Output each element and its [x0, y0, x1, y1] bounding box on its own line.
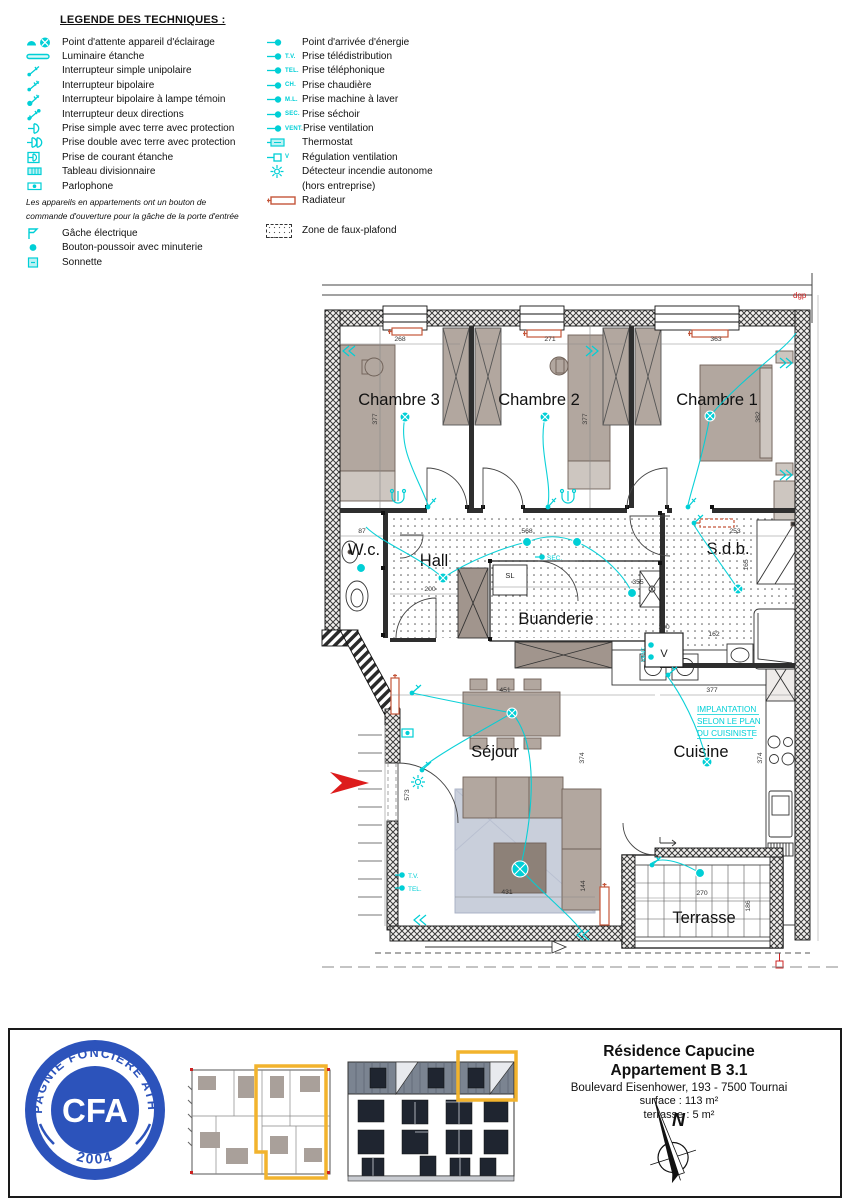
energy-point-icon — [266, 36, 302, 49]
legend-item-subline: (hors entreprise) — [266, 179, 496, 193]
legend-item: Détecteur incendie autonome — [266, 165, 496, 179]
title-block: COMPAGNIE FONCIERE ATHOISE 2004 CFA — [8, 1028, 842, 1198]
room-label-wc: W.c. — [348, 541, 380, 559]
switch-pilot-icon — [26, 93, 62, 106]
legend-item: Prise double avec terre avec protection — [26, 136, 264, 150]
svg-text:363: 363 — [710, 336, 722, 343]
false-ceiling-icon — [266, 224, 302, 238]
svg-text:SELON LE PLAN: SELON LE PLAN — [697, 717, 761, 726]
cfa-acronym: CFA — [62, 1092, 128, 1129]
svg-text:431: 431 — [501, 889, 513, 896]
socket-double-icon — [26, 136, 62, 149]
entrance-arrow — [330, 772, 369, 794]
svg-text:374: 374 — [579, 752, 586, 764]
legend-item: VRégulation ventilation — [266, 150, 496, 164]
svg-text:IMPLANTATION: IMPLANTATION — [697, 705, 756, 714]
svg-text:377: 377 — [706, 687, 718, 694]
apartment-id: Appartement B 3.1 — [528, 1061, 830, 1080]
legend-item: SEC.Prise séchoir — [266, 107, 496, 121]
svg-text:451: 451 — [499, 687, 511, 694]
svg-text:T.V.: T.V. — [408, 873, 419, 880]
socket-icon — [414, 915, 426, 925]
room-label-terrasse: Terrasse — [672, 909, 735, 927]
building-elevation — [340, 1042, 522, 1188]
legend-item: TEL.Prise téléphonique — [266, 64, 496, 78]
svg-text:DU CUISINISTE: DU CUISINISTE — [697, 729, 758, 738]
electric-strike-icon — [26, 227, 62, 240]
floor-plan: dgp — [0, 265, 848, 985]
legend-item: Interrupteur deux directions — [26, 107, 264, 121]
svg-text:270: 270 — [696, 890, 708, 897]
legend-item: Parlophone — [26, 179, 264, 193]
candelabra-icon — [561, 490, 576, 504]
room-label-sdb: S.d.b. — [706, 540, 749, 558]
label-sl: SL — [505, 571, 514, 580]
label-v: V — [660, 648, 668, 660]
svg-text:VENT.: VENT. — [641, 646, 647, 662]
smoke-detector-icon — [411, 775, 425, 789]
svg-text:186: 186 — [745, 900, 752, 912]
tv-socket-icon: T.V. — [266, 50, 302, 63]
legend-item: Interrupteur simple unipolaire — [26, 64, 264, 78]
radiator-icon — [266, 194, 302, 207]
cfa-logo: COMPAGNIE FONCIERE ATHOISE 2004 CFA — [24, 1039, 166, 1181]
room-label-chambre3: Chambre 3 — [358, 391, 440, 409]
svg-text:377: 377 — [372, 413, 379, 425]
switch-bipolar-icon — [26, 79, 62, 92]
legend-item: Prise de courant étanche — [26, 150, 264, 164]
svg-text:144: 144 — [580, 880, 587, 892]
legend-item: Point d'arrivée d'énergie — [266, 35, 496, 49]
legend-item: Interrupteur bipolaire à lampe témoin — [26, 93, 264, 107]
phone-socket-icon: TEL. — [266, 64, 302, 77]
room-label-cuisine: Cuisine — [673, 743, 728, 761]
legend-item: M.L.Prise machine à laver — [266, 93, 496, 107]
distribution-board-icon — [26, 165, 62, 178]
legend-item: Point d'attente appareil d'éclairage — [26, 35, 264, 49]
legend-item: Thermostat — [266, 136, 496, 150]
svg-text:162: 162 — [708, 631, 720, 638]
legend-item: CH.Prise chaudière — [266, 78, 496, 92]
svg-text:TEL.: TEL. — [408, 886, 422, 893]
legend-note: Les appareils en appartements ont un bou… — [26, 196, 264, 223]
legend-item: Prise simple avec terre avec protection — [26, 121, 264, 135]
legend-item: Luminaire étanche — [26, 49, 264, 63]
switch-twoway-icon — [26, 108, 62, 121]
svg-text:100: 100 — [658, 624, 670, 631]
luminaire-icon — [26, 50, 62, 63]
socket-single-icon — [26, 122, 62, 135]
smoke-detector-icon — [266, 164, 302, 179]
room-label-hall: Hall — [420, 552, 448, 570]
thermostat-icon — [266, 136, 302, 149]
svg-text:200: 200 — [424, 586, 436, 593]
svg-text:568: 568 — [521, 528, 533, 535]
svg-text:355: 355 — [632, 579, 644, 586]
legend-item: Radiateur — [266, 193, 496, 207]
svg-text:253: 253 — [729, 528, 741, 535]
ventilation-regulation-icon: V — [266, 151, 302, 164]
washer-socket-icon: M.L. — [266, 93, 302, 106]
legend-item: Tableau divisionnaire — [26, 165, 264, 179]
legend-panel: LEGENDE DES TECHNIQUES : Point d'attente… — [26, 14, 496, 269]
svg-text:271: 271 — [544, 336, 556, 343]
svg-text:573: 573 — [404, 789, 411, 801]
intercom-icon — [26, 180, 62, 193]
north-letter: N — [672, 1110, 686, 1130]
room-label-sejour: Séjour — [471, 743, 519, 761]
room-label-buanderie: Buanderie — [518, 610, 593, 628]
balcony-railing — [358, 725, 385, 926]
legend-item: VENT.Prise ventilation — [266, 121, 496, 135]
project-name: Résidence Capucine — [528, 1042, 830, 1061]
svg-text:377: 377 — [582, 413, 589, 425]
switch-icon — [686, 498, 696, 509]
svg-text:165: 165 — [743, 559, 750, 571]
plan-note-dgp: dgp — [793, 291, 807, 300]
legend-item: Interrupteur bipolaire — [26, 78, 264, 92]
ventilation-socket-icon: VENT. — [266, 122, 303, 135]
red-marker — [776, 953, 783, 968]
pushbutton-icon — [26, 241, 62, 254]
lamp-point-icon — [26, 36, 62, 49]
svg-text:87: 87 — [358, 528, 366, 535]
legend-item: T.V.Prise télédistribution — [266, 49, 496, 63]
room-label-chambre2: Chambre 2 — [498, 391, 580, 409]
north-compass: N — [638, 1088, 702, 1192]
legend-column-2: Point d'arrivée d'énergie T.V.Prise télé… — [266, 35, 496, 238]
intercom-icon — [402, 729, 413, 737]
svg-text:268: 268 — [394, 336, 406, 343]
boiler-socket-icon: CH. — [266, 79, 302, 92]
socket-waterproof-icon — [26, 151, 62, 164]
switch-unipolar-icon — [26, 64, 62, 77]
kitchen-installer-note: IMPLANTATION SELON LE PLAN DU CUISINISTE — [697, 705, 761, 739]
legend-title: LEGENDE DES TECHNIQUES : — [60, 14, 496, 26]
svg-text:SEC.: SEC. — [547, 555, 562, 562]
svg-text:382: 382 — [755, 411, 762, 423]
legend-item: Zone de faux-plafond — [266, 224, 496, 238]
dryer-socket-icon: SEC. — [266, 108, 302, 121]
switch-icon — [420, 762, 431, 772]
svg-text:374: 374 — [757, 752, 764, 764]
legend-column-1: Point d'attente appareil d'éclairage Lum… — [26, 35, 264, 269]
legend-item: Bouton-poussoir avec minuterie — [26, 241, 264, 255]
legend-item: Gâche électrique — [26, 226, 264, 240]
room-label-chambre1: Chambre 1 — [676, 391, 758, 409]
key-plan — [186, 1056, 334, 1188]
